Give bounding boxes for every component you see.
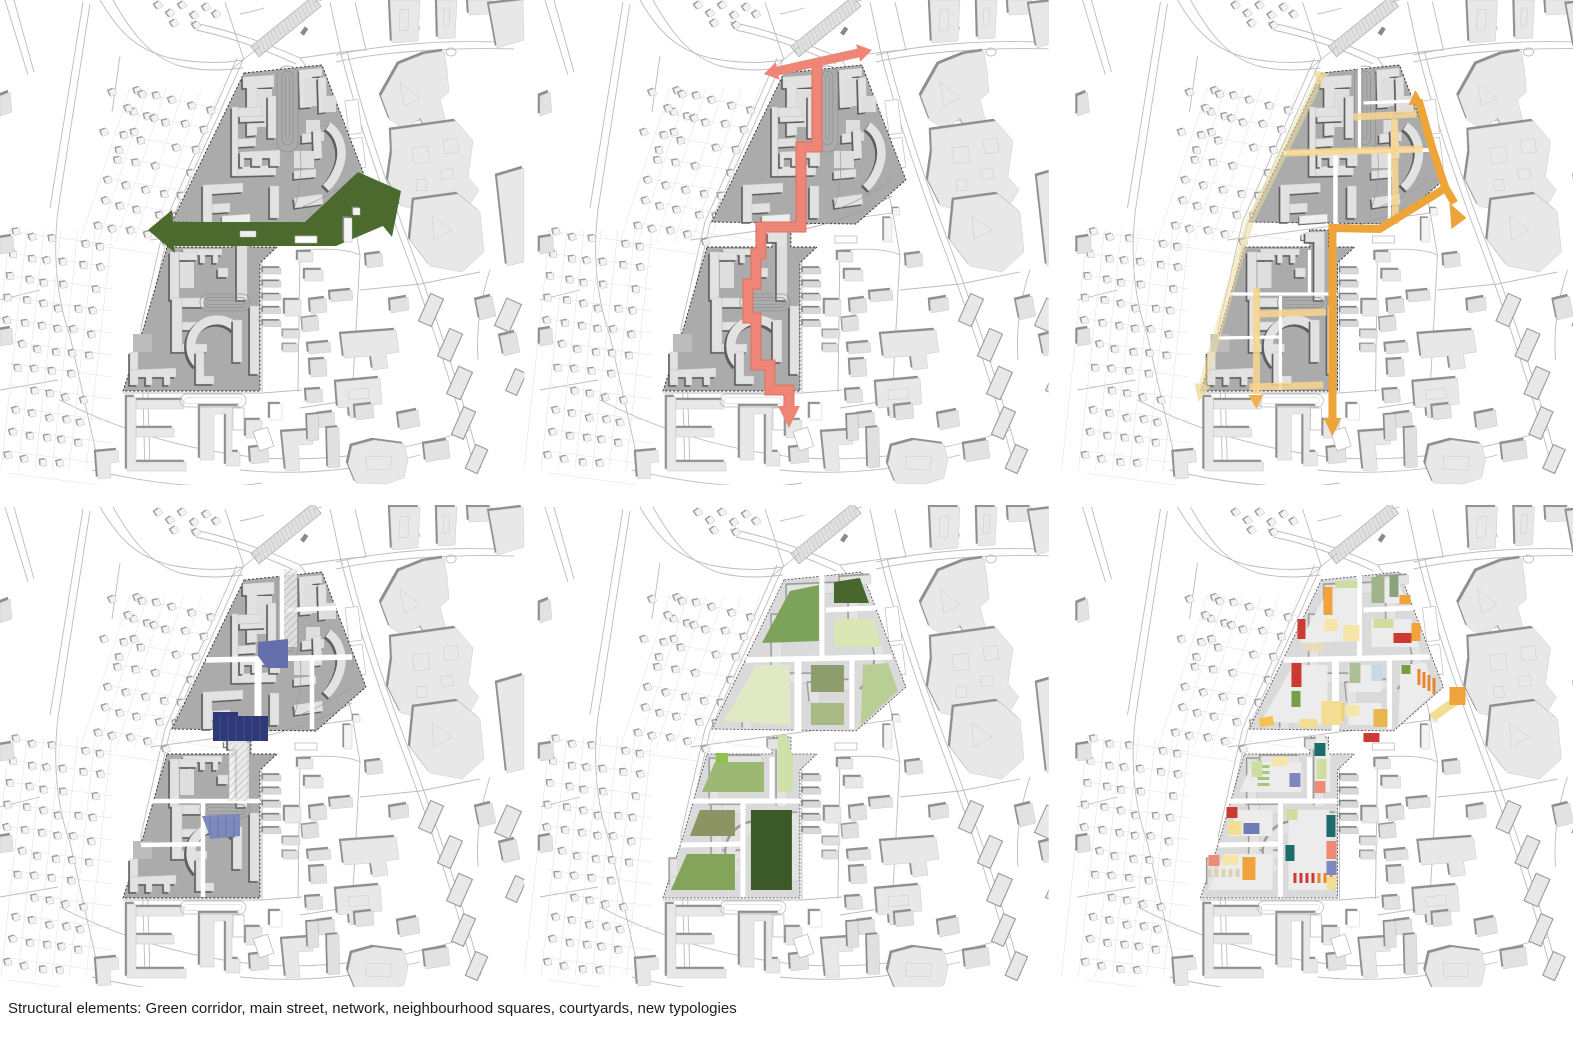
svg-text:Structural elements: Green cor: Structural elements: Green corridor, mai… (8, 1000, 737, 1017)
